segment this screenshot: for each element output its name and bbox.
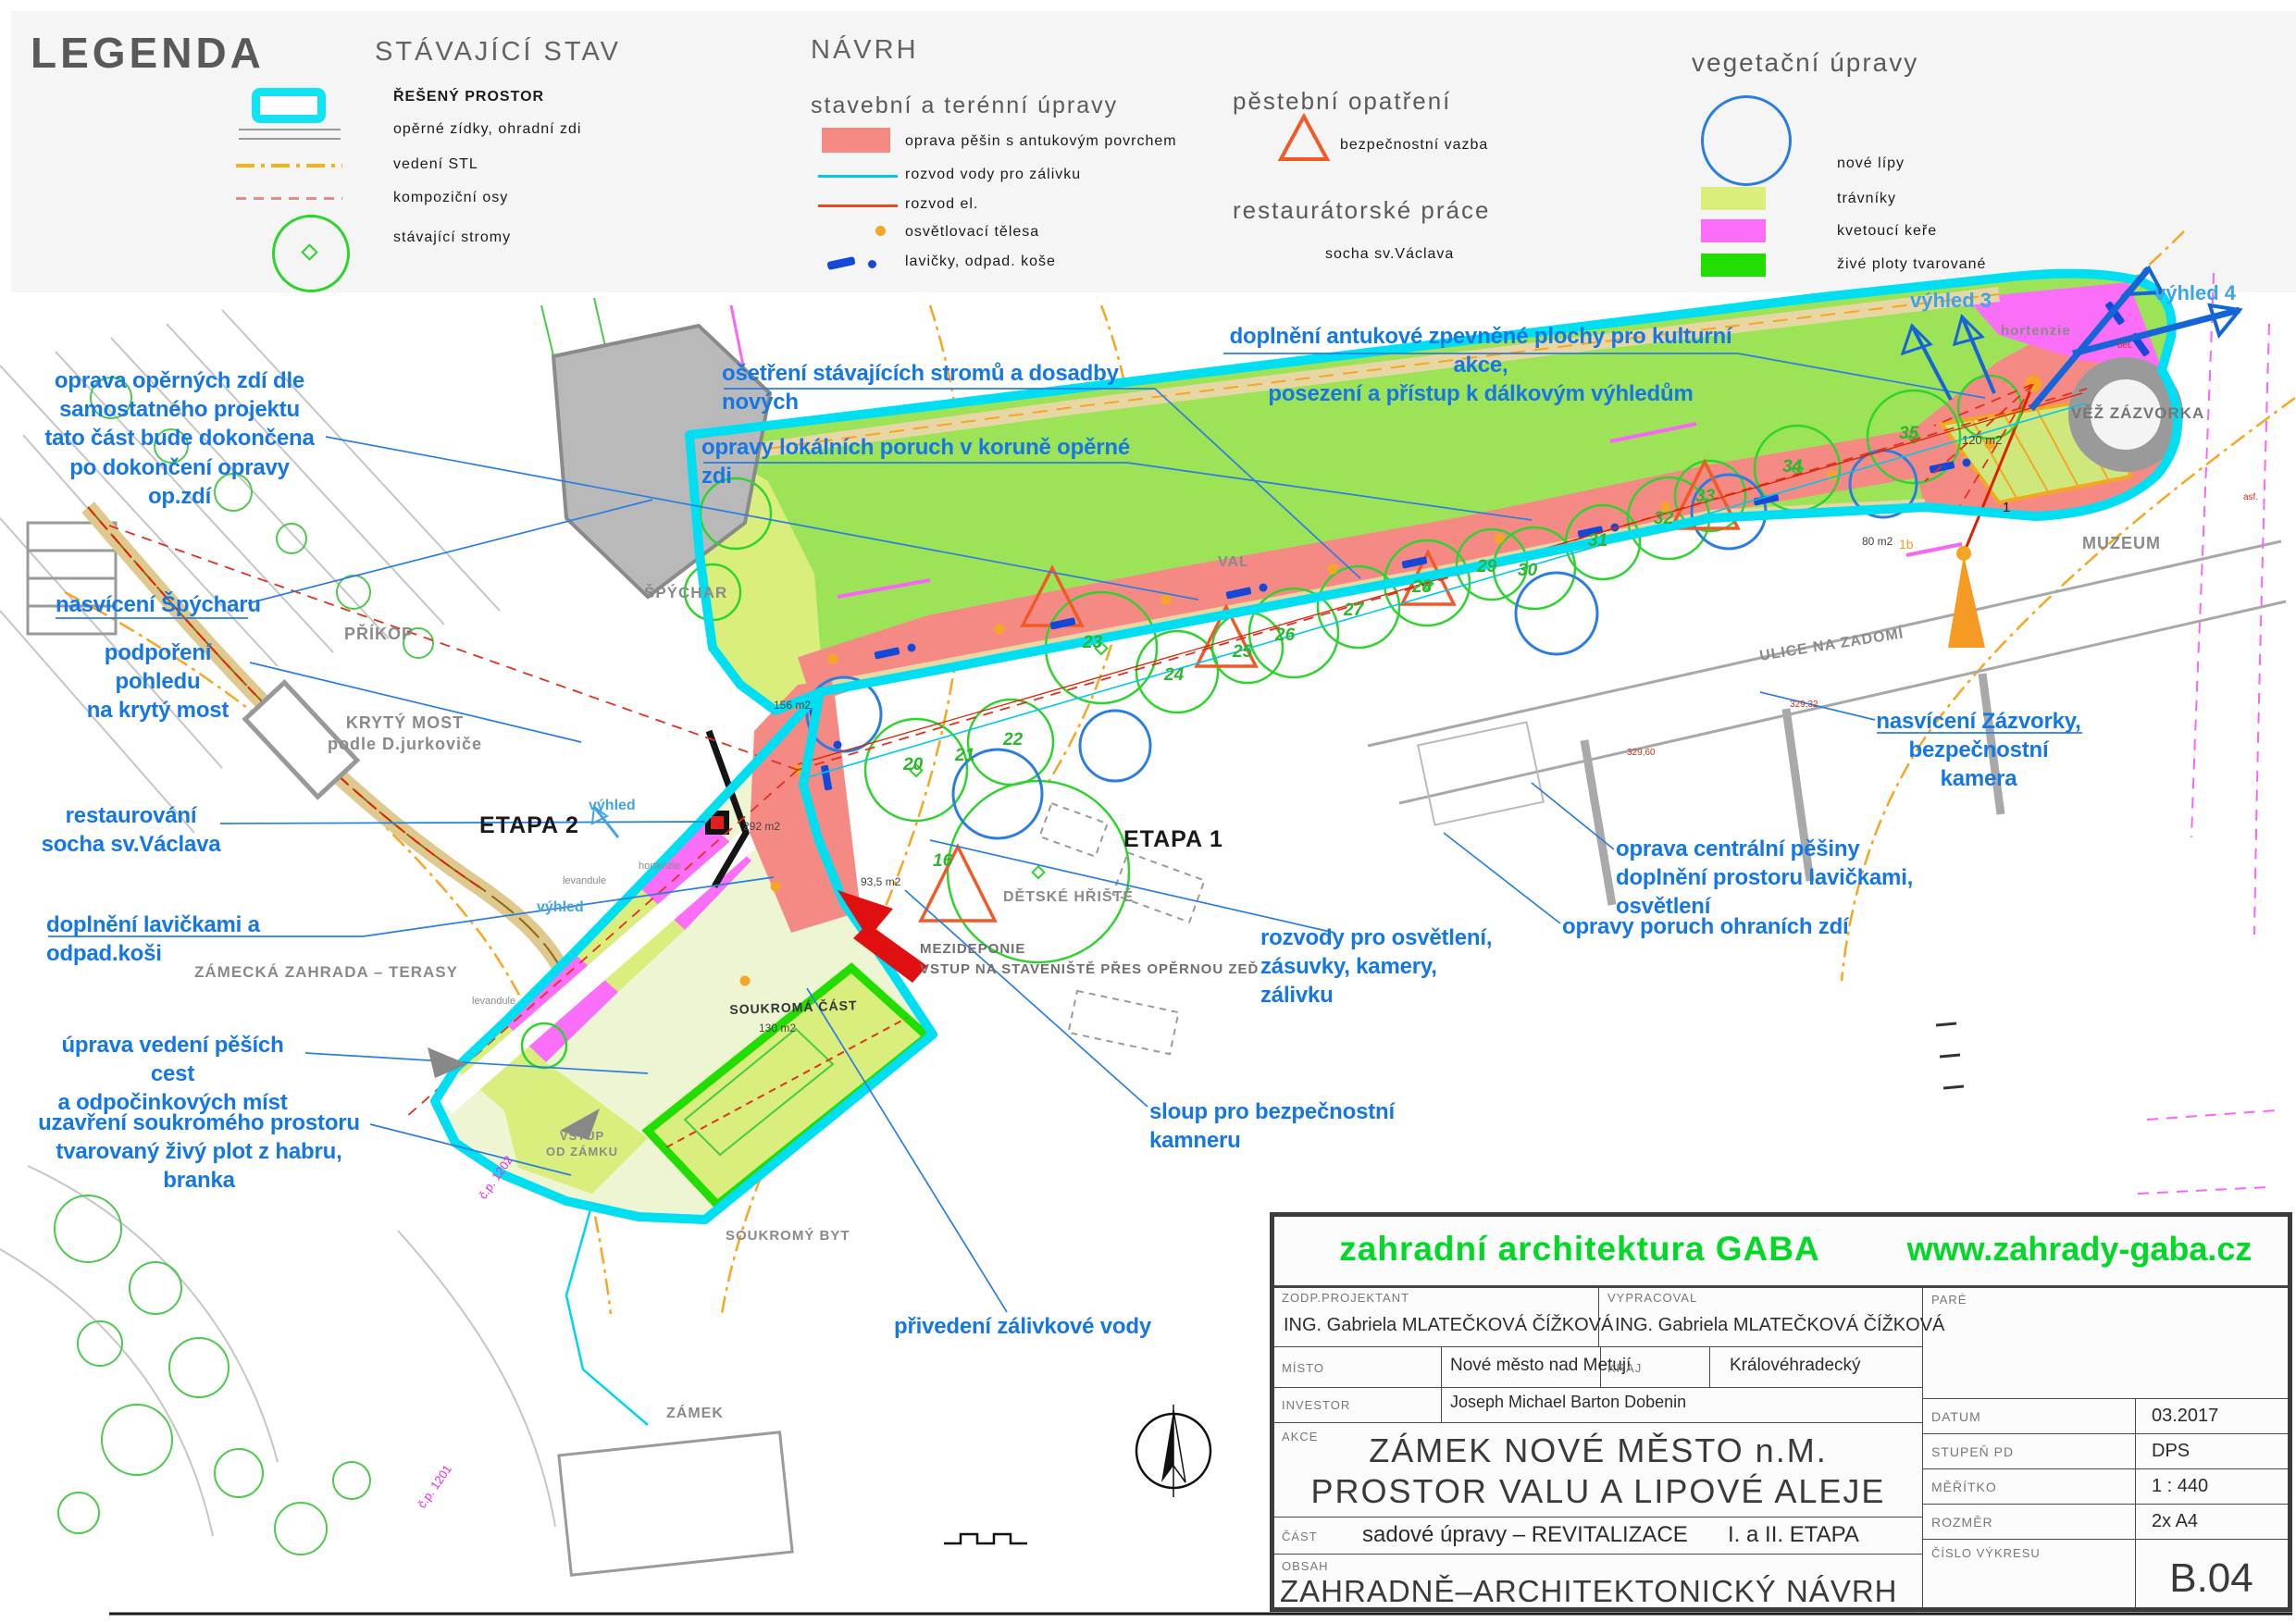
stupen-value: DPS xyxy=(2152,1441,2190,1462)
misto-label: MÍSTO xyxy=(1282,1361,1324,1375)
drawing-number: B.04 xyxy=(2135,1555,2288,1602)
drawing-sheet: LEGENDA STÁVAJÍCÍ STAV ŘEŠENÝ PROSTOR op… xyxy=(0,0,2296,1623)
project-title-line2: PROSTOR VALU A LIPOVÉ ALEJE xyxy=(1274,1472,1922,1511)
title-block-header: zahradní architektura GABA www.zahrady-g… xyxy=(1274,1217,2288,1288)
cislo-label: ČÍSLO VÝKRESU xyxy=(1931,1546,2041,1560)
company-name: zahradní architektura GABA xyxy=(1311,1230,1848,1269)
investor-value: Joseph Michael Barton Dobenin xyxy=(1450,1393,1686,1412)
etapa-value: I. a II. ETAPA xyxy=(1728,1522,1859,1548)
datum-value: 03.2017 xyxy=(2152,1406,2218,1427)
north-compass xyxy=(1136,1405,1210,1497)
title-block: zahradní architektura GABA www.zahrady-g… xyxy=(1270,1212,2292,1612)
zodp-value: ING. Gabriela MLATEČKOVÁ ČÍŽKOVÁ xyxy=(1284,1315,1613,1336)
drawing-content-title: ZAHRADNĚ–ARCHITEKTONICKÝ NÁVRH xyxy=(1280,1574,1898,1609)
zodp-label: ZODP.PROJEKTANT xyxy=(1282,1291,1409,1305)
datum-label: DATUM xyxy=(1931,1409,1981,1424)
project-title-line1: ZÁMEK NOVÉ MĚSTO n.M. xyxy=(1274,1431,1922,1470)
rozmer-value: 2x A4 xyxy=(2152,1511,2198,1532)
scale-bar xyxy=(944,1534,1027,1543)
stupen-label: STUPEŇ PD xyxy=(1931,1444,2014,1459)
cast-value: sadové úpravy – REVITALIZACE xyxy=(1362,1522,1688,1548)
investor-label: INVESTOR xyxy=(1282,1398,1350,1412)
kraj-label: KRAJ xyxy=(1607,1361,1642,1375)
kraj-value: Královéhradecký xyxy=(1730,1356,1861,1376)
misto-value: Nové město nad Metují xyxy=(1450,1356,1631,1376)
cast-label: ČÁST xyxy=(1282,1530,1318,1543)
vypracoval-value: ING. Gabriela MLATEČKOVÁ ČÍŽKOVÁ xyxy=(1615,1315,1944,1336)
meritko-value: 1 : 440 xyxy=(2152,1476,2208,1497)
company-website[interactable]: www.zahrady-gaba.cz xyxy=(1885,1230,2274,1269)
vypracoval-label: VYPRACOVAL xyxy=(1607,1291,1697,1305)
rozmer-label: ROZMĚR xyxy=(1931,1515,1993,1530)
pare-label: PARÉ xyxy=(1931,1293,1967,1307)
obsah-label: OBSAH xyxy=(1282,1559,1329,1573)
design-area xyxy=(435,274,2178,1220)
meritko-label: MĚŘÍTKO xyxy=(1931,1480,1997,1494)
